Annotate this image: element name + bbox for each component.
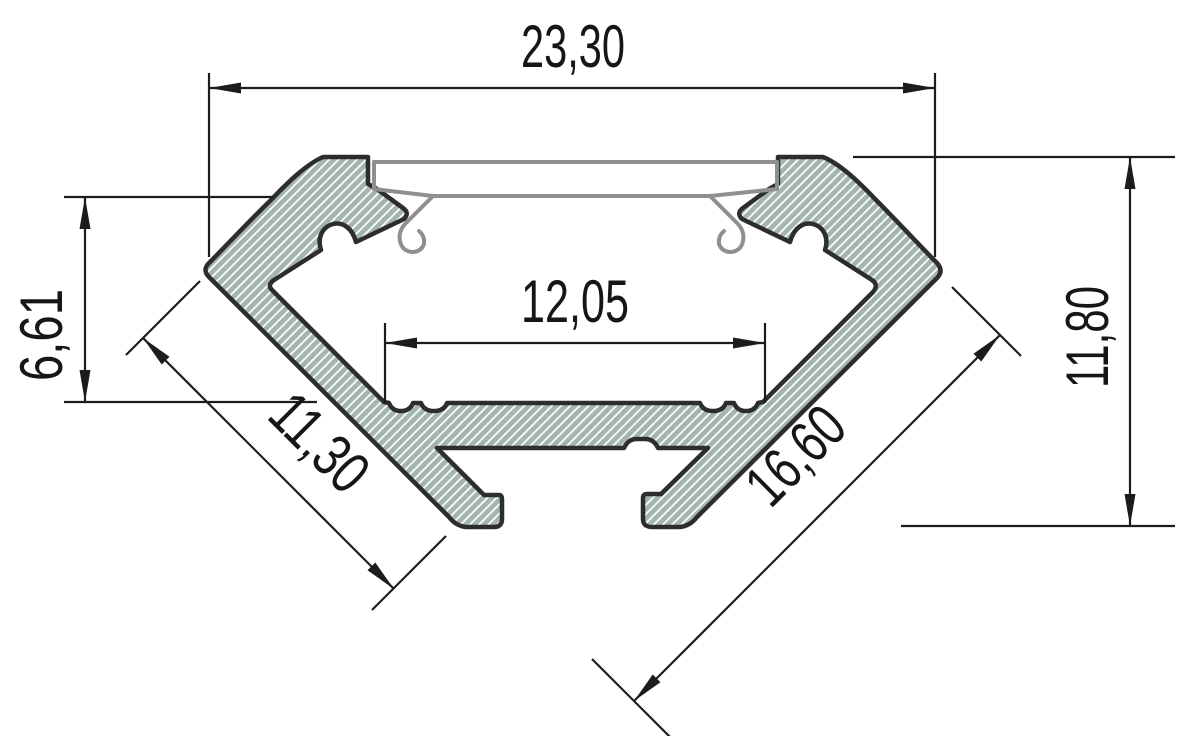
arrowhead bbox=[1125, 157, 1136, 189]
arrowhead bbox=[209, 83, 241, 94]
dim-label-channel-width: 12,05 bbox=[521, 268, 629, 335]
arrowhead bbox=[1125, 494, 1136, 526]
profile-cross-section-drawing: 23,30 12,05 6,61 11,80 11,30 bbox=[0, 0, 1181, 736]
dimension-channel-width: 12,05 bbox=[385, 268, 765, 403]
extension-line bbox=[126, 281, 200, 355]
cover-right-clip bbox=[710, 196, 743, 252]
arrowhead bbox=[80, 370, 91, 402]
arrowhead bbox=[143, 338, 170, 365]
dim-label-total-height: 11,80 bbox=[1054, 286, 1121, 388]
arrowhead bbox=[634, 675, 661, 702]
arrowhead bbox=[368, 563, 395, 590]
dim-label-channel-depth: 6,61 bbox=[8, 289, 75, 381]
cover-underside-line bbox=[374, 162, 777, 196]
arrowhead bbox=[385, 338, 417, 349]
dim-label-width-top: 23,30 bbox=[521, 13, 625, 80]
extension-line bbox=[372, 536, 446, 610]
diffuser-cover bbox=[374, 162, 777, 252]
arrowhead bbox=[974, 335, 1001, 362]
dimension-total-height: 11,80 bbox=[853, 157, 1175, 526]
arrowhead bbox=[80, 197, 91, 229]
arrowhead bbox=[733, 338, 765, 349]
technical-drawing-canvas: 23,30 12,05 6,61 11,80 11,30 bbox=[0, 0, 1181, 736]
cover-left-clip bbox=[400, 196, 433, 252]
arrowhead bbox=[903, 83, 935, 94]
